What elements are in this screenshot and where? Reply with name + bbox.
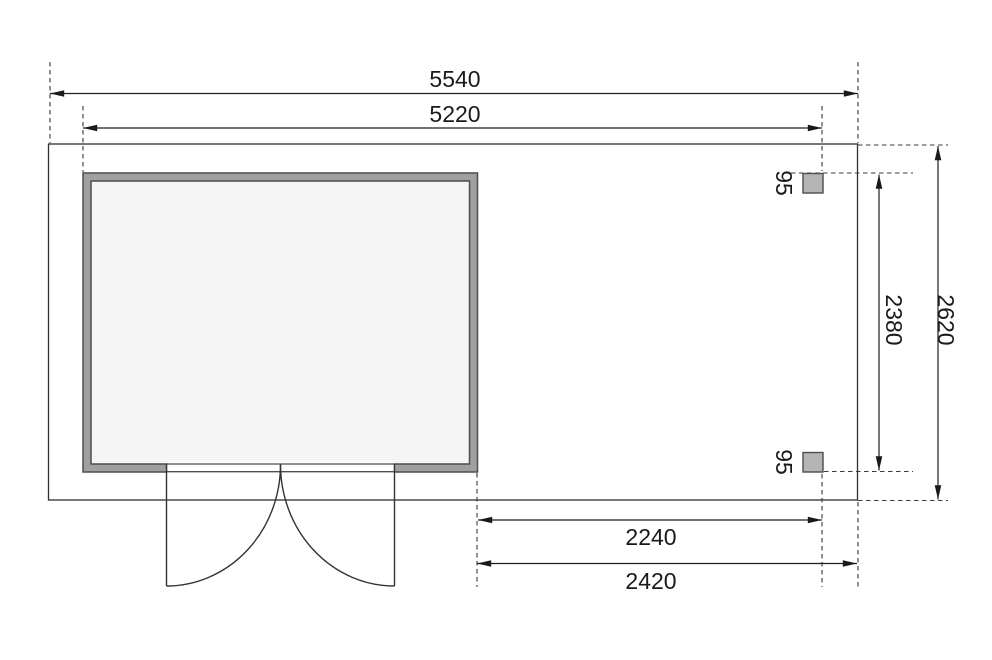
floor-plan-drawing: 5540 5220 2240 2420 2380 2620 95 95 xyxy=(0,0,992,660)
dim-label-overall-width: 5540 xyxy=(395,66,515,92)
dim-label-post-top-size: 95 xyxy=(771,133,797,233)
shed-interior xyxy=(91,181,470,464)
dim-label-body-width: 5220 xyxy=(395,101,515,127)
dim-label-annex-inner-width: 2240 xyxy=(591,524,711,550)
post-bottom xyxy=(803,453,823,473)
post-top xyxy=(803,174,823,194)
dim-label-post-inner-depth: 2380 xyxy=(881,260,907,380)
dim-label-overall-depth: 2620 xyxy=(933,260,959,380)
plan-linework xyxy=(0,0,992,660)
shed-walls xyxy=(83,173,478,474)
dim-label-annex-overall-width: 2420 xyxy=(591,568,711,594)
dim-label-post-bottom-size: 95 xyxy=(771,412,797,512)
